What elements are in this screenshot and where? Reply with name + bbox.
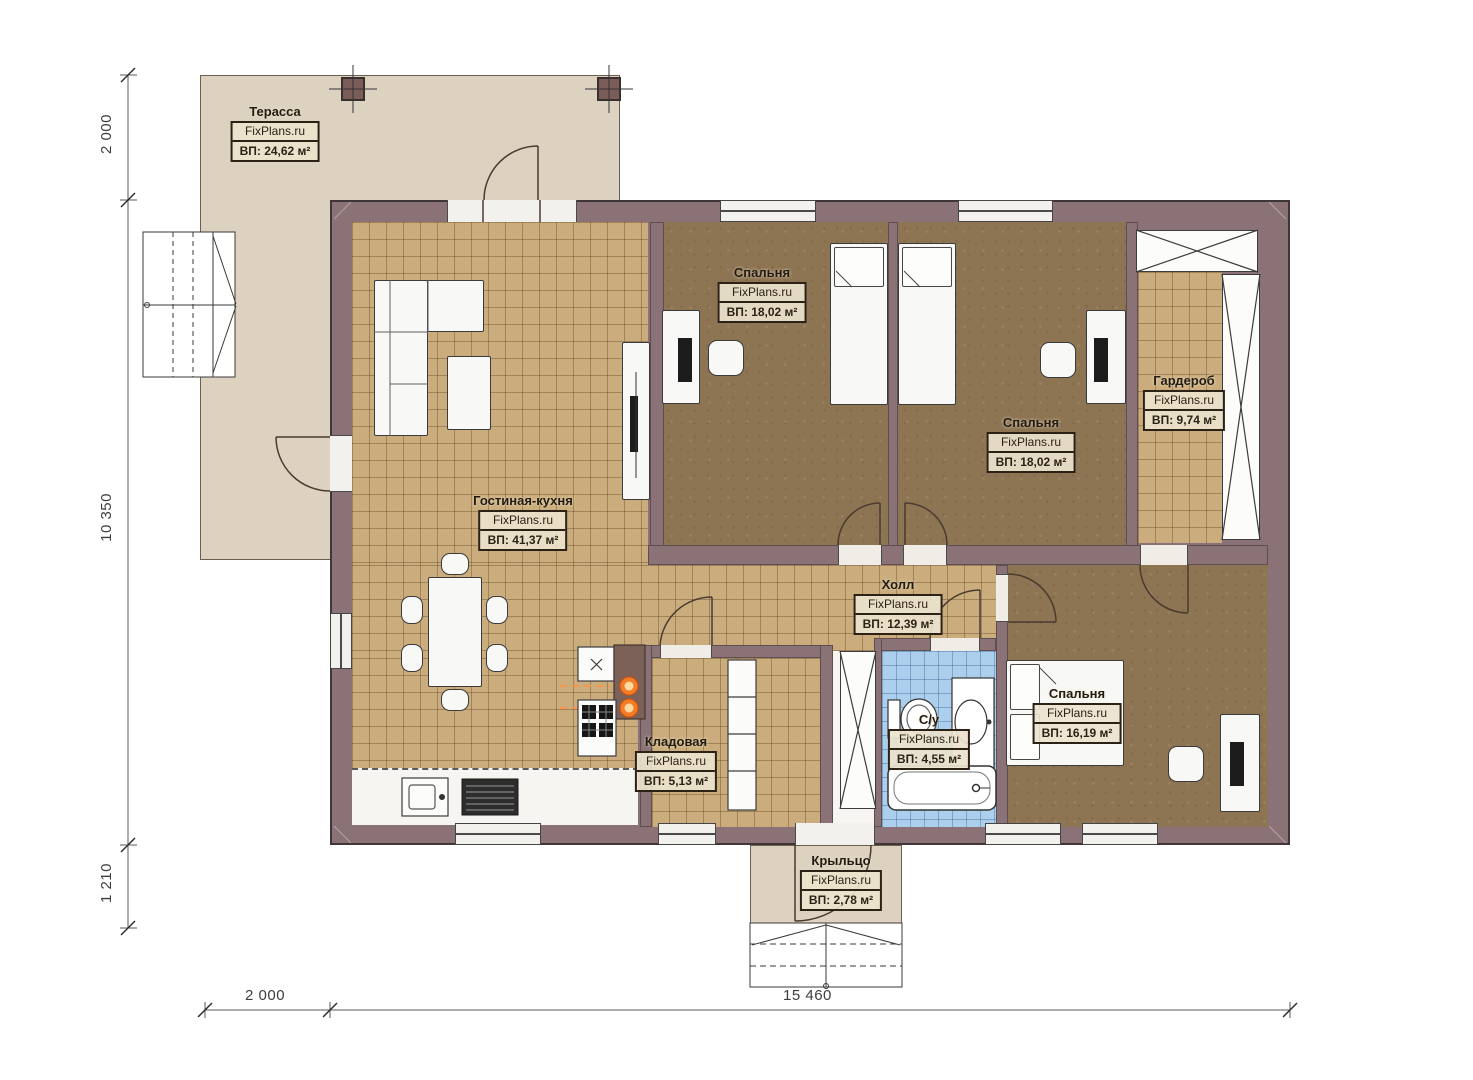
brand-watermark: FixPlans.ru (1035, 705, 1120, 724)
room-label-living-kitchen: Гостиная-кухня FixPlans.ru ВП: 41,37 м² (473, 493, 573, 551)
room-name: Кладовая (635, 734, 717, 749)
sofa-body (374, 280, 428, 436)
dining-table (428, 577, 482, 687)
brand-watermark: FixPlans.ru (720, 284, 805, 303)
storage-window (658, 823, 716, 845)
room-area: ВП: 16,19 м² (1035, 724, 1120, 742)
room-label-wardrobe: Гардероб FixPlans.ru ВП: 9,74 м² (1143, 373, 1225, 431)
dining-chair (441, 689, 469, 711)
room-area: ВП: 9,74 м² (1145, 411, 1223, 429)
brand-watermark: FixPlans.ru (637, 753, 715, 772)
room-label-porch: Крыльцо FixPlans.ru ВП: 2,78 м² (800, 853, 882, 911)
desk-chair (1040, 342, 1076, 378)
room-label-bedroom-bottom: Спальня FixPlans.ru ВП: 16,19 м² (1033, 686, 1122, 744)
dining-window (330, 613, 352, 669)
brand-watermark: FixPlans.ru (233, 123, 318, 142)
dimension-bottom-main: 15 460 (783, 987, 832, 1004)
room-name: Гостиная-кухня (473, 493, 573, 508)
pillow (902, 247, 952, 287)
room-name: Гардероб (1143, 373, 1225, 388)
hall-closet (840, 651, 876, 809)
brand-watermark: FixPlans.ru (890, 731, 968, 750)
room-area: ВП: 24,62 м² (233, 142, 318, 160)
dining-chair (401, 596, 423, 624)
bedroom2-window (958, 200, 1053, 222)
floor-plan: Терасса FixPlans.ru ВП: 24,62 м² Гостина… (0, 0, 1473, 1080)
dining-chair (486, 596, 508, 624)
desk (1086, 310, 1126, 404)
brand-watermark: FixPlans.ru (481, 512, 566, 531)
terrace-pillar (341, 77, 365, 101)
porch-steps (750, 923, 902, 989)
brand-watermark: FixPlans.ru (1145, 392, 1223, 411)
terrace-side-door-opening (330, 435, 352, 492)
room-label-terrace: Терасса FixPlans.ru ВП: 24,62 м² (231, 104, 320, 162)
room-area: ВП: 41,37 м² (481, 531, 566, 549)
room-name: Холл (854, 577, 943, 592)
entrance-door-opening (795, 823, 875, 845)
coffee-table (447, 356, 491, 430)
room-name: Спальня (1033, 686, 1122, 701)
kitchen-counter (352, 768, 639, 825)
room-name: Спальня (987, 415, 1076, 430)
room-label-bathroom: С/у FixPlans.ru ВП: 4,55 м² (888, 712, 970, 770)
dining-chair (401, 644, 423, 672)
dining-chair (486, 644, 508, 672)
bedroom2-door-opening (903, 545, 947, 565)
wall-bedroom1-bedroom2 (888, 222, 898, 565)
bedroom1-window (720, 200, 816, 222)
room-area: ВП: 18,02 м² (720, 303, 805, 321)
dimension-bottom-left: 2 000 (245, 987, 285, 1004)
desk-chair (1168, 746, 1204, 782)
dimension-left-bottom: 1 210 (98, 863, 115, 903)
room-name: Терасса (231, 104, 320, 119)
wardrobe-door-opening (1140, 545, 1188, 565)
wall-bedroom2-wardrobe (1126, 222, 1138, 565)
dining-chair (441, 553, 469, 575)
terrace-door-opening (447, 200, 577, 222)
bedroom3-window-2 (1082, 823, 1158, 845)
wardrobe-closet-right (1222, 274, 1260, 540)
wardrobe-closet-top (1136, 230, 1258, 272)
brand-watermark: FixPlans.ru (802, 872, 880, 891)
pillow (834, 247, 884, 287)
room-area: ВП: 2,78 м² (802, 891, 880, 909)
bedroom1-door-opening (838, 545, 882, 565)
room-area: ВП: 12,39 м² (856, 615, 941, 633)
tv-stand (622, 342, 650, 500)
dimension-left-main: 10 350 (98, 493, 115, 542)
desk-chair (708, 340, 744, 376)
kitchen-window (455, 823, 541, 845)
kitchen-floor (352, 658, 638, 770)
bathroom-door-opening (930, 638, 980, 651)
room-name: С/у (888, 712, 970, 727)
terrace-pillar (597, 77, 621, 101)
room-label-storage: Кладовая FixPlans.ru ВП: 5,13 м² (635, 734, 717, 792)
room-label-bedroom-top-left: Спальня FixPlans.ru ВП: 18,02 м² (718, 265, 807, 323)
room-label-hall: Холл FixPlans.ru ВП: 12,39 м² (854, 577, 943, 635)
room-label-bedroom-top-right: Спальня FixPlans.ru ВП: 18,02 м² (987, 415, 1076, 473)
room-name: Спальня (718, 265, 807, 280)
wall-storage-east (820, 645, 833, 827)
room-area: ВП: 4,55 м² (890, 750, 968, 768)
room-area: ВП: 5,13 м² (637, 772, 715, 790)
desk (662, 310, 700, 404)
room-area: ВП: 18,02 м² (989, 453, 1074, 471)
bedroom3-window-1 (985, 823, 1061, 845)
storage-door-opening (660, 645, 712, 658)
brand-watermark: FixPlans.ru (989, 434, 1074, 453)
brand-watermark: FixPlans.ru (856, 596, 941, 615)
room-name: Крыльцо (800, 853, 882, 868)
bedroom3-door-opening (996, 574, 1008, 622)
desk (1220, 714, 1260, 812)
dimension-left-top: 2 000 (98, 114, 115, 154)
